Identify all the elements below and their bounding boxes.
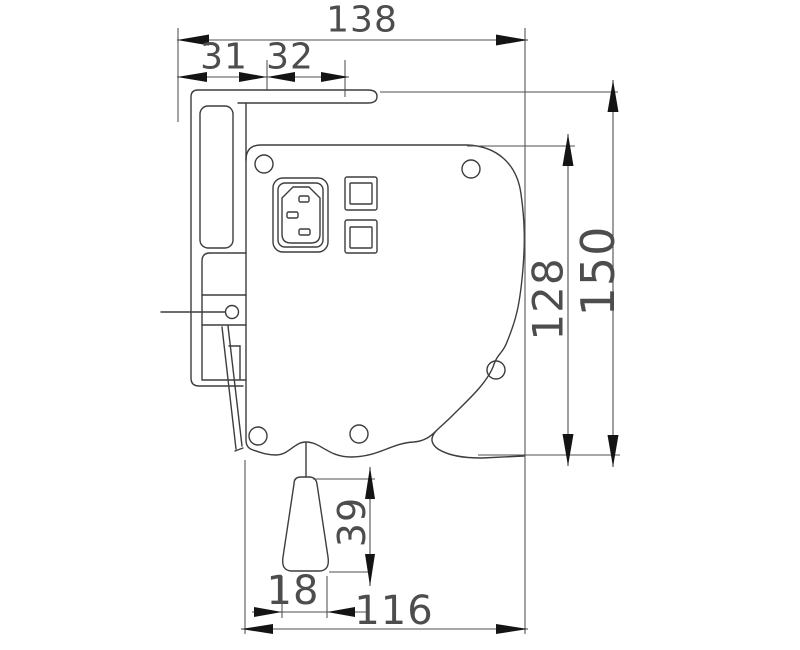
inlet-inner-frame [278, 183, 323, 247]
dim-text-flange-right: 32 [266, 37, 314, 78]
switch-button-bottom-inner [350, 227, 372, 248]
dim-handle-drop: 39 [330, 467, 375, 586]
arrowhead [327, 607, 355, 617]
inlet-pin-middle [287, 212, 298, 218]
dim-text-body-width: 116 [354, 588, 433, 634]
bracket-slot [200, 106, 233, 248]
arrowhead [563, 434, 574, 466]
screw-hole-right-lower [487, 361, 505, 379]
pull-handle-body [283, 477, 329, 571]
bracket-outline [191, 90, 377, 386]
inlet-pin-top [299, 196, 309, 202]
dim-text-handle-drop: 39 [330, 497, 374, 547]
dim-handle-width: 18 [252, 568, 368, 617]
dim-text-body-height: 128 [524, 257, 573, 340]
dim-body-height: 128 [524, 134, 574, 466]
dim-overall-height: 150 [571, 80, 625, 467]
screw-hole-top-right [462, 160, 480, 178]
arrowhead [563, 134, 574, 166]
screw-hole-top-left [255, 155, 273, 173]
dimensions: 138 31 32 150 128 [177, 0, 625, 634]
screw-hole-bottom-middle [350, 425, 368, 443]
pull-handle [283, 443, 329, 571]
switch-buttons [345, 177, 377, 253]
dim-text-total-width: 138 [326, 0, 398, 41]
arrowhead [608, 435, 619, 467]
arrowhead [365, 554, 375, 586]
arrowhead [608, 80, 619, 112]
dim-text-flange-left: 31 [200, 37, 248, 78]
body-left-bottom-edge [246, 160, 524, 458]
technical-drawing: 138 31 32 150 128 [0, 0, 800, 650]
screw-hole-bottom-left [249, 427, 267, 445]
arrowhead [496, 624, 528, 634]
mounting-bracket [161, 90, 377, 451]
body-top-right-edge [246, 145, 524, 431]
arrowhead [365, 467, 375, 499]
arrowhead [496, 35, 528, 46]
dim-text-overall-height: 150 [571, 226, 625, 317]
dim-text-handle-width: 18 [267, 568, 320, 614]
technical-drawing-canvas: 138 31 32 150 128 [0, 0, 800, 650]
iec-power-inlet [273, 178, 328, 252]
bracket-pin-hole [226, 306, 239, 319]
inlet-pin-bottom [299, 229, 310, 235]
dim-flange-segments: 31 32 [177, 37, 349, 83]
switch-button-top-inner [350, 183, 372, 204]
arrowhead [241, 624, 273, 634]
